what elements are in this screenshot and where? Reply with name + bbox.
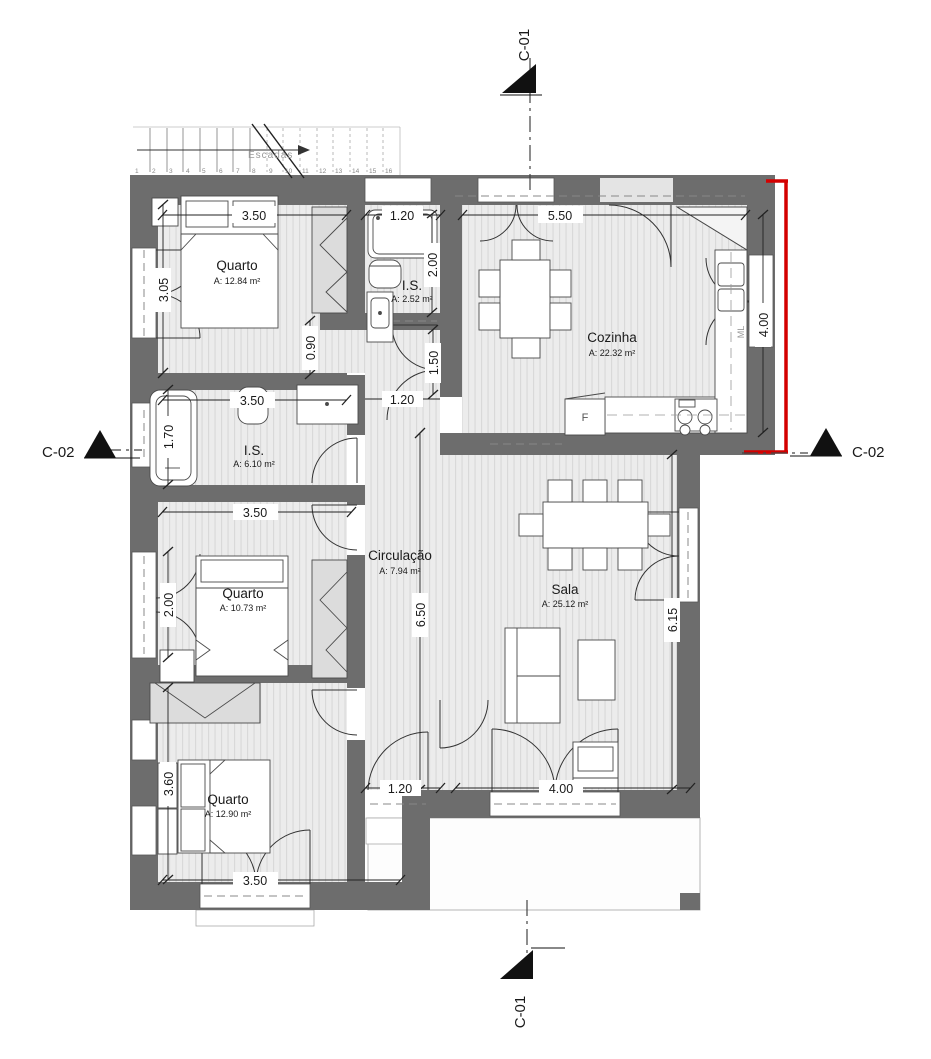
svg-text:11: 11: [302, 168, 309, 175]
dim-hall-top: 0.90: [304, 336, 318, 360]
svg-text:Quarto: Quarto: [207, 792, 248, 807]
svg-text:Circulação: Circulação: [368, 548, 432, 563]
svg-text:2: 2: [152, 168, 156, 175]
svg-text:16: 16: [385, 168, 393, 175]
stairs-label: Escadas: [248, 150, 293, 161]
dim-circulacao-door: 1.20: [388, 782, 412, 796]
svg-text:13: 13: [335, 168, 343, 175]
svg-text:12: 12: [319, 168, 327, 175]
svg-text:A: 6.10 m²: A: 6.10 m²: [233, 459, 275, 469]
dim-is2-width: 3.50: [240, 394, 264, 408]
room-label-cozinha: Cozinha A: 22.32 m²: [587, 330, 637, 358]
svg-text:A: 22.32 m²: A: 22.32 m²: [589, 348, 636, 358]
dim-quarto3-width: 3.50: [243, 874, 267, 888]
floor-plan-page: Escadas 1 2 3 4 5 6 7 8 9 10 11 12 13 14…: [0, 0, 931, 1059]
section-marker-c02-right: C-02: [790, 428, 885, 461]
toilet-icon: [369, 260, 401, 288]
svg-text:8: 8: [252, 168, 256, 175]
svg-text:4: 4: [186, 168, 190, 175]
washer-label: ML: [736, 326, 746, 339]
room-label-quarto3: Quarto A: 12.90 m²: [205, 792, 252, 819]
dim-is2-left: 1.70: [162, 425, 176, 449]
wardrobe-icon: [312, 207, 347, 313]
svg-text:6: 6: [219, 168, 223, 175]
dim-quarto1-width: 3.50: [242, 209, 266, 223]
dim-cozinha-right: 4.00: [757, 313, 771, 337]
fridge-label: F: [582, 412, 589, 424]
room-label-quarto1: Quarto A: 12.84 m²: [214, 258, 261, 286]
dim-hall-mid: 1.50: [427, 351, 441, 375]
dim-cozinha-width: 5.50: [548, 209, 572, 223]
svg-text:Quarto: Quarto: [216, 258, 257, 273]
stair-arrow: [298, 145, 310, 155]
svg-text:9: 9: [269, 168, 273, 175]
stair-numbers: 1 2 3 4 5 6 7 8 9 10 11 12 13 14 15 16: [135, 168, 393, 175]
svg-text:A: 25.12 m²: A: 25.12 m²: [542, 599, 589, 609]
section-marker-c02-left: C-02: [42, 430, 140, 461]
svg-text:I.S.: I.S.: [244, 443, 264, 458]
svg-text:Quarto: Quarto: [222, 586, 263, 601]
dim-quarto1-left: 3.05: [157, 278, 171, 302]
dim-sala-right: 6.15: [666, 608, 680, 632]
armchair-icon: [578, 640, 615, 700]
svg-text:Sala: Sala: [551, 582, 579, 597]
vanity-icon: [297, 385, 358, 424]
dim-kitchen-door: 1.20: [390, 393, 414, 407]
dresser-icon: [160, 650, 194, 682]
section-marker-c01-top: C-01: [500, 29, 542, 95]
section-marker-c01-bottom: C-01: [500, 948, 565, 1028]
svg-text:A: 10.73 m²: A: 10.73 m²: [220, 603, 267, 613]
dim-sala-width: 4.00: [549, 782, 573, 796]
dim-is1-height: 2.00: [426, 253, 440, 277]
svg-text:14: 14: [352, 168, 360, 175]
svg-text:I.S.: I.S.: [402, 278, 422, 293]
svg-text:3: 3: [169, 168, 173, 175]
svg-text:1: 1: [135, 168, 139, 175]
svg-text:7: 7: [236, 168, 240, 175]
svg-text:10: 10: [285, 168, 293, 175]
floor-plan-svg: Escadas 1 2 3 4 5 6 7 8 9 10 11 12 13 14…: [0, 0, 931, 1059]
svg-text:A: 2.52 m²: A: 2.52 m²: [391, 294, 433, 304]
sofa-icon: [505, 628, 560, 723]
stairs: Escadas 1 2 3 4 5 6 7 8 9 10 11 12 13 14…: [133, 124, 400, 178]
dim-quarto2-left: 2.00: [162, 593, 176, 617]
c01-top-label: C-01: [516, 29, 533, 62]
bed2-icon: [196, 556, 288, 676]
svg-text:15: 15: [369, 168, 377, 175]
svg-text:A: 12.84 m²: A: 12.84 m²: [214, 276, 261, 286]
dim-quarto2-width: 3.50: [243, 506, 267, 520]
wardrobe2-icon: [312, 560, 347, 678]
svg-text:5: 5: [202, 168, 206, 175]
room-label-quarto2: Quarto A: 10.73 m²: [220, 586, 267, 613]
dim-quarto3-left: 3.60: [162, 772, 176, 796]
svg-text:A: 7.94 m²: A: 7.94 m²: [379, 566, 421, 576]
stove-icon: [675, 399, 717, 435]
dim-circulacao-height: 6.50: [414, 603, 428, 627]
c01-bottom-label: C-01: [512, 996, 529, 1029]
svg-text:A: 12.90 m²: A: 12.90 m²: [205, 809, 252, 819]
dim-is1-width: 1.20: [390, 209, 414, 223]
c02-left-label: C-02: [42, 444, 75, 461]
c02-right-label: C-02: [852, 444, 885, 461]
svg-text:Cozinha: Cozinha: [587, 330, 637, 345]
sink-icon: [367, 292, 393, 342]
